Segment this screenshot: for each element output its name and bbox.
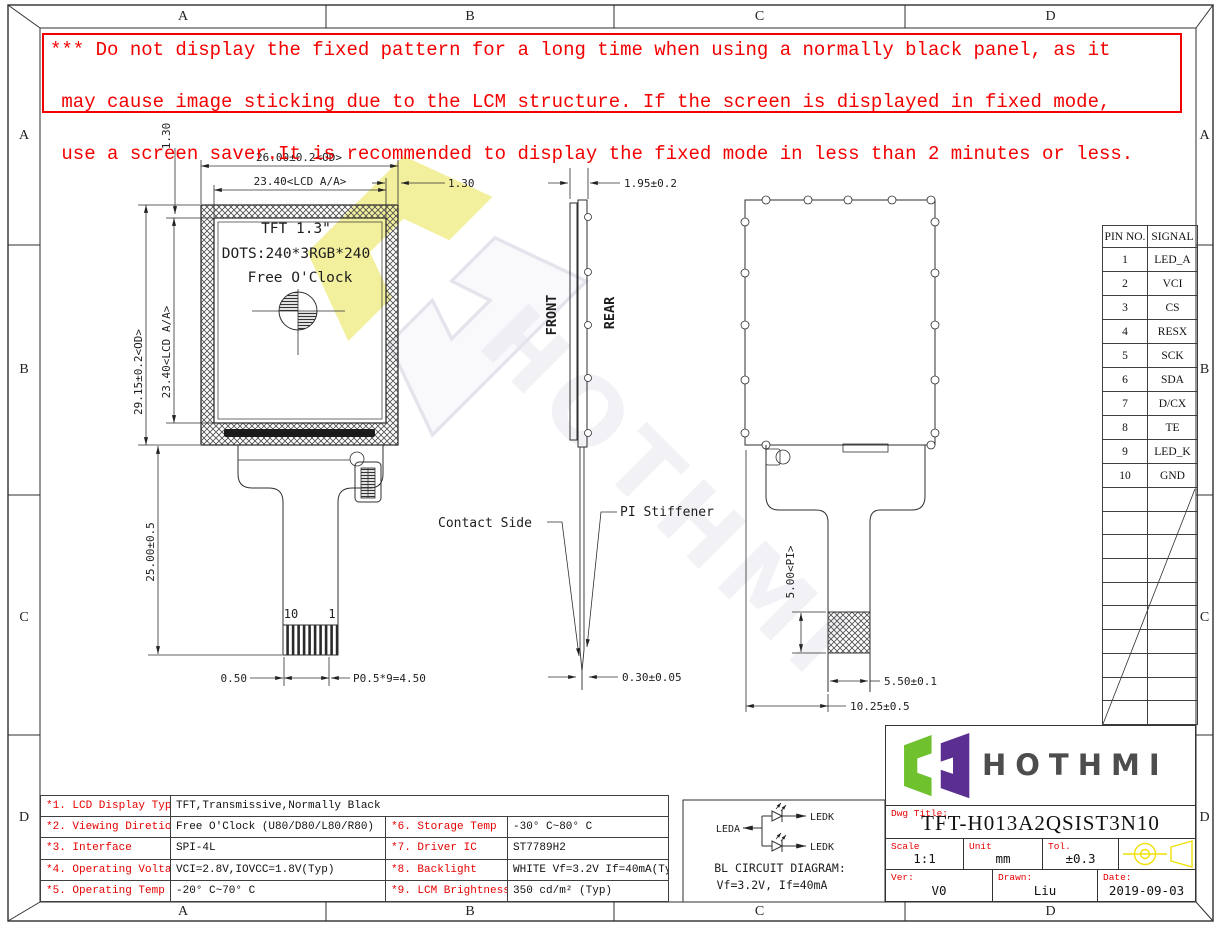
pin-signal: LED_K bbox=[1148, 440, 1198, 464]
ledk-label-bottom: LEDK bbox=[810, 842, 834, 853]
dim-pin-pitch: P0.5*9=4.50 bbox=[353, 672, 426, 685]
bonding-bar bbox=[224, 429, 375, 437]
grid-col-a-top: A bbox=[40, 9, 326, 25]
pin-number-first: 10 bbox=[284, 607, 298, 621]
grid-row-b-right: B bbox=[1196, 362, 1213, 378]
brand-watermark: HOTHMI bbox=[279, 127, 876, 700]
pin-signal: CS bbox=[1148, 296, 1198, 320]
pin-no: 3 bbox=[1103, 296, 1148, 320]
spec-value: -20° C~70° C bbox=[171, 880, 386, 901]
date-label: Date: bbox=[1103, 872, 1132, 883]
table-row: *2. Viewing Diretion Free O'Clock (U80/D… bbox=[41, 817, 669, 838]
brand-name: HOTHMI bbox=[982, 748, 1169, 782]
bl-circuit-labels: LEDA LEDK LEDK BL CIRCUIT DIAGRAM: Vf=3.… bbox=[714, 812, 846, 892]
pin-signal: SDA bbox=[1148, 368, 1198, 392]
table-row: 6SDA bbox=[1103, 368, 1198, 392]
pin-signal: GND bbox=[1148, 464, 1198, 488]
grid-row-c-right: C bbox=[1196, 610, 1213, 626]
fpc-component bbox=[355, 462, 381, 502]
pin-signal: VCI bbox=[1148, 272, 1198, 296]
scale-cell: Scale 1:1 bbox=[886, 839, 964, 869]
dim-pi-height: 5.00<PI> bbox=[784, 545, 797, 598]
bl-circuit-title: BL CIRCUIT DIAGRAM: bbox=[714, 861, 846, 875]
spec-table: *1. LCD Display Type TFT,Transmissive,No… bbox=[40, 795, 669, 902]
table-row: 8TE bbox=[1103, 416, 1198, 440]
warning-line-1: *** Do not display the fixed pattern for… bbox=[50, 39, 1110, 61]
grid-row-a-right: A bbox=[1196, 128, 1213, 144]
rear-side-label: REAR bbox=[602, 296, 618, 329]
pin-signal: D/CX bbox=[1148, 392, 1198, 416]
dim-fpc-length: 25.00±0.5 bbox=[144, 522, 157, 582]
spec-value: Free O'Clock (U80/D80/L80/R80) bbox=[171, 817, 386, 838]
spec-value: ST7789H2 bbox=[508, 838, 669, 859]
hothmi-logo-icon bbox=[904, 733, 969, 798]
scale-value: 1:1 bbox=[886, 851, 963, 866]
grid-col-c-top: C bbox=[614, 9, 905, 25]
rear-view-notches bbox=[741, 196, 939, 449]
empty-row bbox=[1103, 559, 1198, 583]
drawn-label: Drawn: bbox=[998, 872, 1032, 883]
front-view-dimensions bbox=[138, 148, 445, 686]
table-row: 5SCK bbox=[1103, 344, 1198, 368]
dim-tail-offset: 10.25±0.5 bbox=[850, 700, 910, 713]
rear-view bbox=[741, 196, 939, 692]
ledk-label-top: LEDK bbox=[810, 812, 834, 823]
leda-label: LEDA bbox=[716, 824, 740, 835]
pi-stiffener-label: PI Stiffener bbox=[620, 505, 714, 520]
engineering-drawing-sheet: HOTHMI bbox=[0, 0, 1221, 927]
grid-row-b-left: B bbox=[8, 362, 40, 378]
panel-text-dots: DOTS:240*3RGB*240 bbox=[222, 246, 370, 262]
dim-od-height: 29.15±0.2<OD> bbox=[132, 329, 145, 415]
grid-row-d-right: D bbox=[1196, 810, 1213, 826]
logo-right-shape bbox=[941, 733, 970, 798]
empty-row bbox=[1103, 630, 1198, 654]
grid-col-b-bottom: B bbox=[326, 904, 614, 920]
empty-row bbox=[1103, 653, 1198, 677]
fpc-contact-pins bbox=[283, 625, 338, 655]
version-row: Ver: V0 Drawn: Liu Date: 2019-09-03 bbox=[886, 870, 1195, 901]
version-value: V0 bbox=[886, 883, 992, 898]
spec-key: *1. LCD Display Type bbox=[41, 796, 171, 817]
grid-col-d-top: D bbox=[905, 9, 1196, 25]
grid-col-a-bottom: A bbox=[40, 904, 326, 920]
empty-row bbox=[1103, 535, 1198, 559]
tol-cell: Tol. ±0.3 bbox=[1043, 839, 1119, 869]
logo-left-shape bbox=[904, 735, 932, 796]
side-view-labels: FRONT REAR 1.95±0.2 0.30±0.05 Contact Si… bbox=[438, 177, 714, 684]
bl-circuit-subtitle: Vf=3.2V, If=40mA bbox=[717, 878, 828, 892]
side-view-bumps bbox=[585, 214, 592, 437]
pin-signal: SCK bbox=[1148, 344, 1198, 368]
table-row: 4RESX bbox=[1103, 320, 1198, 344]
dim-side-bezel: 1.30 bbox=[448, 177, 475, 190]
signal-header: SIGNAL bbox=[1148, 226, 1198, 248]
spec-key: *9. LCM Brightness bbox=[386, 880, 508, 901]
date-value: 2019-09-03 bbox=[1098, 883, 1195, 898]
dim-tail-width: 5.50±0.1 bbox=[884, 675, 937, 688]
rear-view-labels: 5.00<PI> 5.50±0.1 10.25±0.5 bbox=[784, 545, 937, 713]
pin-no: 1 bbox=[1103, 248, 1148, 272]
dim-aa-height: 23.40<LCD A/A> bbox=[160, 305, 173, 398]
spec-value: TFT,Transmissive,Normally Black bbox=[171, 796, 669, 817]
pin-no: 9 bbox=[1103, 440, 1148, 464]
warning-line-3: use a screen saver.It is recommended to … bbox=[50, 143, 1133, 165]
pin-table-header: PIN NO. SIGNAL bbox=[1103, 226, 1198, 248]
scale-row: Scale 1:1 Unit mm Tol. ±0.3 bbox=[886, 839, 1195, 870]
dim-fpc-thickness: 0.30±0.05 bbox=[622, 671, 682, 684]
spec-value: 350 cd/m² (Typ) bbox=[508, 880, 669, 901]
pin-signal-table: PIN NO. SIGNAL 1LED_A 2VCI 3CS 4RESX 5SC… bbox=[1102, 225, 1198, 725]
pin-signal: TE bbox=[1148, 416, 1198, 440]
table-row: *5. Operating Temp -20° C~70° C *9. LCM … bbox=[41, 880, 669, 901]
spec-value: SPI-4L bbox=[171, 838, 386, 859]
grid-row-c-left: C bbox=[8, 610, 40, 626]
side-view bbox=[570, 200, 592, 690]
table-row: 1LED_A bbox=[1103, 248, 1198, 272]
active-area-line bbox=[218, 222, 382, 419]
pin-no: 8 bbox=[1103, 416, 1148, 440]
panel-text-clock: Free O'Clock bbox=[248, 270, 353, 286]
table-row: 3CS bbox=[1103, 296, 1198, 320]
table-row: 2VCI bbox=[1103, 272, 1198, 296]
panel-text-size: TFT 1.3" bbox=[261, 221, 331, 237]
table-row: *4. Operating Voltage VCI=2.8V,IOVCC=1.8… bbox=[41, 859, 669, 880]
dwg-title-row: Dwg Title: TFT-H013A2QSIST3N10 bbox=[886, 806, 1195, 839]
spec-value: VCI=2.8V,IOVCC=1.8V(Typ) bbox=[171, 859, 386, 880]
contact-side-label: Contact Side bbox=[438, 516, 532, 531]
fpc-hole bbox=[350, 452, 364, 466]
pin-no: 4 bbox=[1103, 320, 1148, 344]
empty-row bbox=[1103, 511, 1198, 535]
pin-no: 10 bbox=[1103, 464, 1148, 488]
drawn-cell: Drawn: Liu bbox=[993, 870, 1098, 901]
spec-key: *7. Driver IC bbox=[386, 838, 508, 859]
logo-row: HOTHMI bbox=[886, 726, 1195, 806]
empty-row bbox=[1103, 701, 1198, 725]
warning-line-2: may cause image sticking due to the LCM … bbox=[50, 91, 1110, 113]
front-side-label: FRONT bbox=[544, 295, 560, 336]
drawn-value: Liu bbox=[993, 883, 1097, 898]
grid-col-d-bottom: D bbox=[905, 904, 1196, 920]
spec-key: *5. Operating Temp bbox=[41, 880, 171, 901]
table-row: 10GND bbox=[1103, 464, 1198, 488]
spec-key: *2. Viewing Diretion bbox=[41, 817, 171, 838]
watermark-logo-right-shape bbox=[365, 214, 586, 435]
drawing-number: TFT-H013A2QSIST3N10 bbox=[886, 811, 1195, 836]
pin-signal: LED_A bbox=[1148, 248, 1198, 272]
grid-row-a-left: A bbox=[8, 128, 40, 144]
spec-value: WHITE Vf=3.2V If=40mA(Typ) bbox=[508, 859, 669, 880]
pin-no: 6 bbox=[1103, 368, 1148, 392]
pin-signal: RESX bbox=[1148, 320, 1198, 344]
pin-no: 7 bbox=[1103, 392, 1148, 416]
side-view-dimensions bbox=[547, 168, 620, 677]
pin-no-header: PIN NO. bbox=[1103, 226, 1148, 248]
front-view-labels: TFT 1.3" DOTS:240*3RGB*240 Free O'Clock … bbox=[132, 123, 475, 685]
table-row: 7D/CX bbox=[1103, 392, 1198, 416]
unit-value: mm bbox=[964, 851, 1042, 866]
dim-aa-width: 23.40<LCD A/A> bbox=[254, 175, 347, 188]
empty-row bbox=[1103, 488, 1198, 512]
spec-key: *6. Storage Temp bbox=[386, 817, 508, 838]
grid-col-c-bottom: C bbox=[614, 904, 905, 920]
dim-pin-margin: 0.50 bbox=[221, 672, 248, 685]
projection-cell bbox=[1119, 839, 1195, 869]
spec-key: *3. Interface bbox=[41, 838, 171, 859]
table-row: *1. LCD Display Type TFT,Transmissive,No… bbox=[41, 796, 669, 817]
led-symbol-top bbox=[772, 803, 806, 822]
fpc-tail-outline bbox=[238, 445, 383, 655]
led-symbol-bottom bbox=[772, 833, 806, 852]
unit-cell: Unit mm bbox=[964, 839, 1043, 869]
table-row: 9LED_K bbox=[1103, 440, 1198, 464]
title-block: HOTHMI Dwg Title: TFT-H013A2QSIST3N10 Sc… bbox=[885, 725, 1196, 902]
rear-fpc-outline bbox=[766, 445, 925, 692]
watermark-text: HOTHMI bbox=[459, 285, 875, 701]
front-view bbox=[201, 205, 398, 655]
bl-circuit bbox=[683, 800, 885, 902]
empty-row bbox=[1103, 677, 1198, 701]
fixed-pattern-warning: *** Do not display the fixed pattern for… bbox=[42, 33, 1182, 113]
spec-key: *8. Backlight bbox=[386, 859, 508, 880]
spec-key: *4. Operating Voltage bbox=[41, 859, 171, 880]
fpc-side-profile bbox=[580, 447, 584, 690]
empty-row bbox=[1103, 606, 1198, 630]
rear-view-dimensions bbox=[746, 450, 880, 712]
projection-symbol-icon bbox=[1119, 839, 1195, 869]
alignment-target-icon bbox=[252, 289, 345, 355]
empty-row bbox=[1103, 582, 1198, 606]
grid-row-d-left: D bbox=[8, 810, 40, 826]
pin-no: 5 bbox=[1103, 344, 1148, 368]
pin-number-last: 1 bbox=[328, 607, 335, 621]
version-cell: Ver: V0 bbox=[886, 870, 993, 901]
dim-thickness: 1.95±0.2 bbox=[624, 177, 677, 190]
panel-bezel bbox=[201, 205, 398, 445]
version-label: Ver: bbox=[891, 872, 914, 883]
rear-hatch-pad bbox=[828, 612, 870, 653]
table-row: *3. Interface SPI-4L *7. Driver IC ST778… bbox=[41, 838, 669, 859]
tol-value: ±0.3 bbox=[1043, 851, 1118, 866]
grid-col-b-top: B bbox=[326, 9, 614, 25]
spec-value: -30° C~80° C bbox=[508, 817, 669, 838]
date-cell: Date: 2019-09-03 bbox=[1098, 870, 1195, 901]
pin-no: 2 bbox=[1103, 272, 1148, 296]
